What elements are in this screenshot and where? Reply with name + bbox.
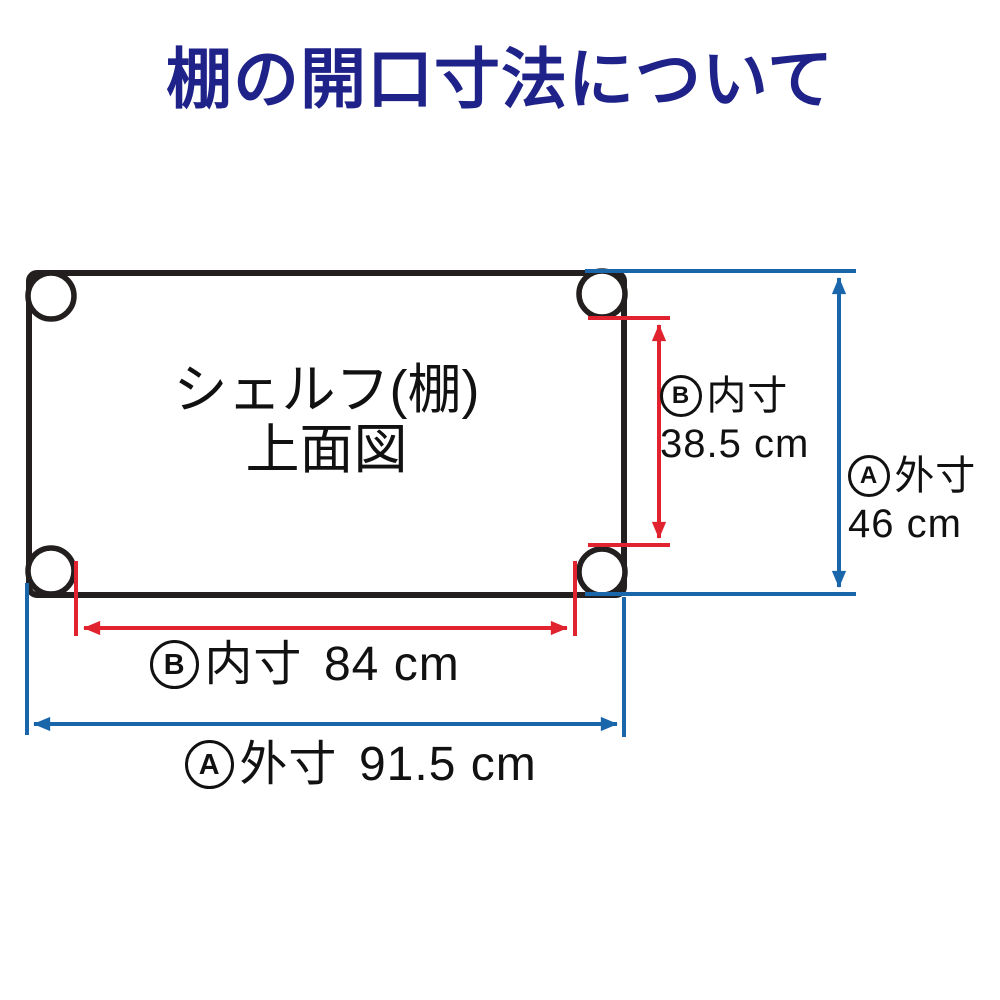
circled-b-icon: B [660, 375, 702, 417]
inner-depth-title: B 内寸 [660, 372, 809, 420]
corner-post-top-right [579, 271, 625, 317]
outer-width-kanji: 外寸 [239, 736, 337, 794]
outer-depth-label: A 外寸 46 cm [848, 452, 976, 548]
outer-depth-kanji: 外寸 [894, 452, 976, 500]
circled-a-icon: A [185, 740, 234, 789]
inner-depth-kanji: 内寸 [706, 372, 788, 420]
inner-width-value: 84 cm [324, 636, 460, 694]
outer-depth-title: A 外寸 [848, 452, 976, 500]
inner-depth-value: 38.5 cm [660, 420, 809, 468]
shelf-label: シェルフ(棚) 上面図 [29, 360, 624, 481]
circled-b-icon: B [150, 640, 199, 689]
inner-depth-label: B 内寸 38.5 cm [660, 372, 809, 468]
circled-a-icon: A [848, 455, 890, 497]
corner-post-bottom-left [28, 548, 74, 594]
shelf-label-line1: シェルフ(棚) [29, 360, 624, 420]
corner-post-bottom-right [579, 549, 625, 595]
inner-width-label: B 内寸 84 cm [150, 636, 460, 694]
outer-width-label: A 外寸 91.5 cm [185, 736, 537, 794]
outer-width-value: 91.5 cm [359, 736, 537, 794]
shelf-dimension-diagram: 棚の開口寸法について シェルフ(棚 [0, 0, 1000, 1000]
outer-depth-value: 46 cm [848, 500, 976, 548]
corner-post-top-left [28, 273, 74, 319]
inner-width-kanji: 内寸 [204, 636, 302, 694]
shelf-label-line2: 上面図 [29, 420, 624, 480]
